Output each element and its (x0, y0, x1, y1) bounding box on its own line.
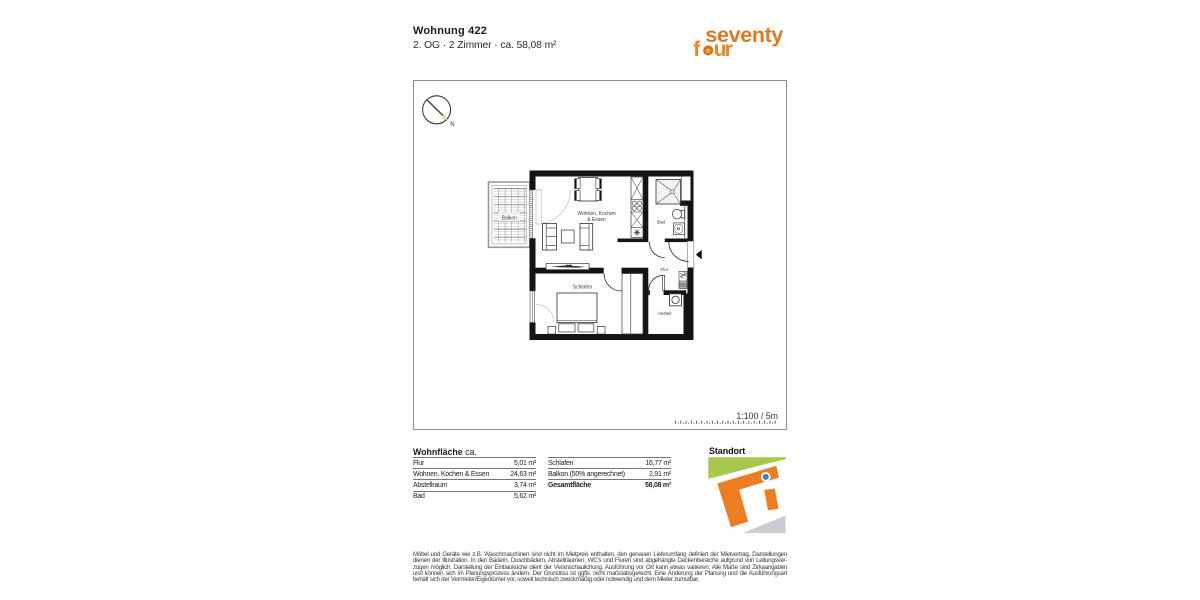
svg-text:Schlafen: Schlafen (573, 285, 593, 291)
svg-text:Bad: Bad (657, 219, 666, 224)
svg-text:Wohnen, Kochen: Wohnen, Kochen (577, 211, 615, 217)
svg-text:Abstell: Abstell (658, 311, 672, 316)
svg-text:Flur: Flur (660, 267, 668, 272)
svg-text:1:100 / 5m: 1:100 / 5m (736, 411, 778, 421)
svg-text:N: N (450, 122, 454, 128)
svg-text:& Essen: & Essen (587, 217, 606, 223)
svg-text:ur: ur (714, 38, 733, 60)
svg-text:f: f (693, 38, 701, 60)
svg-text:Balkon: Balkon (502, 216, 518, 222)
